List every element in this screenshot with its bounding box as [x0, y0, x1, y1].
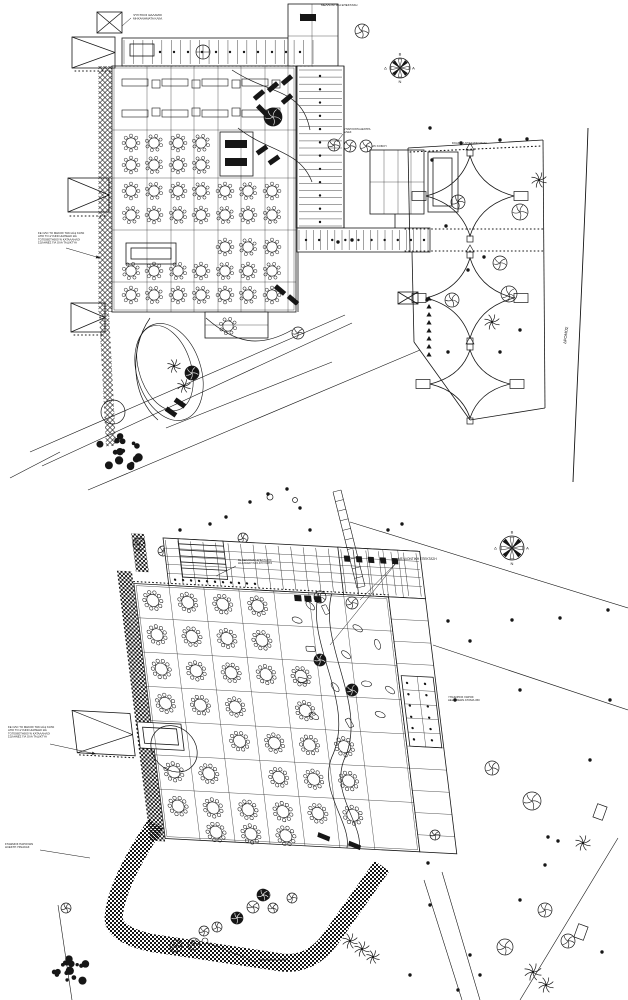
shrub [121, 449, 125, 453]
shrub-dot [308, 528, 311, 531]
shrub [114, 438, 120, 444]
building-outline [338, 547, 426, 599]
shrub-dot [428, 126, 431, 129]
column-dot [331, 239, 333, 241]
shrub-dot [350, 238, 353, 241]
column-dot [299, 51, 301, 53]
compass-cardinal-label: Α [412, 66, 415, 71]
shrub-dot [478, 973, 481, 976]
equipment-block [304, 595, 312, 601]
shrub-dot [498, 138, 501, 141]
shrub-dot [446, 350, 449, 353]
shrub [96, 441, 103, 448]
column-dot [159, 51, 161, 53]
palm-trunk [349, 940, 351, 942]
shrub [78, 977, 86, 985]
palm-trunk [545, 984, 547, 986]
shrub-dot [266, 492, 269, 495]
shrub [105, 461, 113, 469]
annotation-text: ΣΚΙΑΣΤΡΑ ΑΠΟ ΕΙΔΙΚΟ ΠΑΝΙ [452, 141, 487, 145]
column-dot [410, 239, 412, 241]
palm-trunk [183, 385, 185, 387]
palm-trunk [582, 842, 584, 844]
column-dot [319, 181, 321, 183]
shrub-dot [456, 988, 459, 991]
shrub-dot [608, 698, 611, 701]
shrub-dot [444, 224, 447, 227]
column-dot [319, 154, 321, 156]
annotation-text: ΜΕΛΛΟΝΤΙΚΗ ΕΠΕΚΤΑΣΗ [321, 3, 357, 7]
shrub [65, 978, 68, 981]
annotation-text: ΣΤΑΘΜΟΣ ΠΑΡΟΧΩΝΗΛΕΚΤΡ. ΠΙΝΑΚΑΣ [5, 842, 33, 849]
shrub-dot [248, 500, 251, 503]
column-dot [370, 239, 372, 241]
shrub-dot [430, 158, 433, 161]
shrub [115, 456, 123, 464]
shrub-dot [466, 268, 469, 271]
dark-tree-icon [264, 108, 282, 126]
shrub-dot [428, 903, 431, 906]
dark-tree-icon [185, 366, 199, 380]
column-dot [305, 239, 307, 241]
shrub [64, 961, 68, 965]
equipment-block [368, 557, 375, 563]
compass-cardinal-label: Β [399, 52, 402, 57]
shrub-dot [525, 137, 528, 140]
column-dot [319, 208, 321, 210]
column-dot [423, 239, 425, 241]
shrub-dot [518, 898, 521, 901]
column-dot [285, 51, 287, 53]
column-dot [319, 88, 321, 90]
compass-cardinal-label: Ν [399, 79, 402, 84]
compass-cardinal-label: Δ [494, 546, 497, 551]
palm-trunk [173, 365, 175, 367]
shrub-dot [606, 608, 609, 611]
shrub-dot [298, 506, 301, 509]
annotation-label: ΣΚΙΑΣΤΡΑ ΑΠΟ ΕΙΔΙΚΟ ΠΑΝΙ [452, 141, 487, 145]
column-dot [319, 194, 321, 196]
shrub [133, 456, 140, 463]
shrub-dot [336, 240, 339, 243]
shrub-dot [468, 639, 471, 642]
annotation-text: ΜΕΛΛΟΝΤΙΚΗ ΕΠΕΚΤΑΣΗ [398, 557, 437, 561]
shrub-dot [386, 528, 389, 531]
column-dot [383, 239, 385, 241]
annotation-text: ΨΥΚΤΙΚΟΙ ΘΑΛΑΜΟΙΜΗΧΑΝΗΜΑΤΑ ΚΛΙΜ. [133, 13, 163, 20]
shrub-dot [408, 973, 411, 976]
shrub-dot [400, 522, 403, 525]
column-dot [173, 51, 175, 53]
column-dot [257, 51, 259, 53]
column-dot [215, 51, 217, 53]
column-dot [319, 141, 321, 143]
equipment-block [225, 140, 247, 148]
shrub-dot [518, 688, 521, 691]
column-dot [319, 128, 321, 130]
dark-tree-icon [257, 889, 269, 901]
architectural-site-plan-page: Site plan — open-air reception venue (tw… [0, 0, 628, 1000]
shrub-dot [546, 835, 549, 838]
shrub-dot [518, 328, 521, 331]
site-plan-canvas: ΒΑΝΔΨΥΚΤΙΚΟΙ ΘΑΛΑΜΟΙΜΗΧΑΝΗΜΑΤΑ ΚΛΙΜ.ΜΕΛΛ… [0, 0, 628, 1000]
shrub-dot [425, 298, 428, 301]
shrub-dot [558, 616, 561, 619]
column-dot [229, 51, 231, 53]
column-dot [357, 239, 359, 241]
column-dot [319, 101, 321, 103]
palm-trunk [361, 948, 363, 950]
shrub [79, 964, 83, 968]
shrub-dot [426, 861, 429, 864]
shrub-dot [224, 515, 227, 518]
shrub-dot [468, 953, 471, 956]
dark-tree-icon [314, 654, 326, 666]
equipment-block [300, 14, 316, 21]
shrub [72, 975, 77, 980]
annotation-text: WC ΚΟΙΝΟΥ [372, 144, 387, 148]
dark-tree-icon [346, 684, 358, 696]
column-dot [318, 239, 320, 241]
shrub-dot [543, 863, 546, 866]
column-dot [187, 51, 189, 53]
shrub [68, 961, 75, 968]
column-dot [319, 75, 321, 77]
shrub [127, 463, 135, 471]
building-outline [220, 132, 253, 176]
column-dot [397, 239, 399, 241]
shrub-dot [588, 758, 591, 761]
column-dot [271, 51, 273, 53]
shrub-dot [208, 522, 211, 525]
shrub-dot [498, 350, 501, 353]
compass-cardinal-label: Β [511, 530, 514, 535]
shrub-dot [482, 255, 485, 258]
building-outline [131, 248, 171, 259]
shrub [116, 450, 119, 453]
compass-cardinal-label: Δ [384, 66, 387, 71]
annotation-label: WC ΚΟΙΝΟΥ [372, 144, 387, 148]
palm-trunk [532, 971, 534, 973]
compass-cardinal-label: Ν [511, 561, 514, 566]
shrub-dot [178, 528, 181, 531]
hatched-walkway [138, 534, 143, 572]
shrub [75, 963, 78, 966]
shrub [55, 973, 59, 977]
shrub-dot [600, 950, 603, 953]
equipment-block [225, 158, 247, 166]
column-dot [344, 239, 346, 241]
shrub-dot [556, 839, 559, 842]
palm-trunk [538, 179, 540, 181]
annotation-text: ΣΕ ΠΕΡΙΠΤΩΣΗ ΕΠΕΚΤΑΣΗΣΘΑ ΕΝΩΘΟΥΝ ΟΙ ΔΥΟ … [238, 559, 272, 565]
shrub [64, 971, 68, 975]
equipment-block [294, 595, 302, 601]
column-dot [319, 115, 321, 117]
shrub-dot [446, 619, 449, 622]
column-dot [243, 51, 245, 53]
palm-trunk [491, 321, 493, 323]
column-dot [319, 221, 321, 223]
shrub [132, 442, 136, 446]
annotation-text: Telephone booth. [258, 957, 289, 962]
column-dot [319, 168, 321, 170]
compass-cardinal-label: Α [526, 546, 529, 551]
building-outline [143, 727, 179, 745]
shrub-dot [510, 618, 513, 621]
shrub-dot [285, 487, 288, 490]
palm-trunk [372, 956, 374, 958]
annotation-label: ΜΕΛΛΟΝΤΙΚΗ ΕΠΕΚΤΑΣΗ [321, 3, 357, 7]
equipment-block [380, 557, 387, 563]
dark-tree-icon [231, 912, 243, 924]
